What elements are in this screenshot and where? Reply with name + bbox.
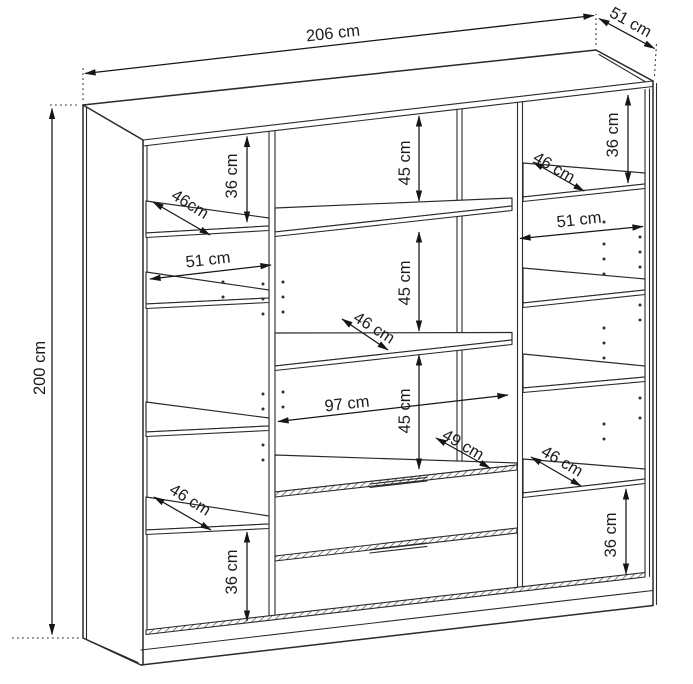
pin-hole — [262, 444, 265, 447]
pin-hole — [282, 391, 285, 394]
top-right-panel-edge — [599, 55, 650, 85]
dim-center-middle-gap: 45 cm — [396, 232, 419, 331]
dim-left-bottom-height: 36 cm — [223, 532, 247, 621]
pin-hole — [639, 251, 642, 254]
dim-label-overall-width: 206 cm — [305, 21, 361, 45]
pin-hole — [282, 296, 285, 299]
pin-hole — [282, 311, 285, 314]
pin-hole — [603, 342, 606, 345]
pin-hole — [639, 397, 642, 400]
drawer-divider-band — [275, 528, 517, 561]
pin-hole — [262, 298, 265, 301]
pin-hole — [639, 236, 642, 239]
drawers — [275, 455, 517, 561]
dim-overall-depth: 51 cm — [599, 4, 657, 76]
base-bottom-edge — [141, 606, 653, 666]
dim-line — [278, 395, 508, 422]
dim-overall-width: 206 cm — [83, 14, 596, 100]
dimension-annotations: 206 cm 51 cm 200 cm 36 cm 46cm 51 — [12, 4, 657, 638]
dim-label-right-top-height: 36 cm — [604, 113, 622, 158]
pin-hole — [262, 313, 265, 316]
extension-line — [655, 43, 657, 76]
pin-hole — [603, 258, 606, 261]
pin-hole — [603, 327, 606, 330]
pin-hole — [639, 266, 642, 269]
bottom-left-inner-line — [87, 640, 139, 663]
dim-center-upper-gap: 45 cm — [396, 116, 419, 201]
dim-label-right-bottom-height: 36 cm — [602, 513, 620, 558]
pin-hole — [603, 423, 606, 426]
pin-hole — [603, 357, 606, 360]
top-right-receding-edge — [596, 50, 653, 81]
pin-hole — [639, 417, 642, 420]
dim-label-left-width: 51 cm — [185, 249, 232, 272]
pin-hole — [282, 281, 285, 284]
shelf-top-surface — [275, 198, 512, 232]
dim-label-center-middle-gap: 45 cm — [396, 261, 414, 306]
pin-hole — [603, 221, 606, 224]
dim-label-left-bottom-height: 36 cm — [223, 550, 241, 595]
pin-hole — [282, 406, 285, 409]
dim-right-width: 51 cm — [520, 209, 643, 239]
pin-hole — [639, 319, 642, 322]
dim-right-bottom-height: 36 cm — [602, 489, 626, 574]
pin-hole — [262, 283, 265, 286]
pin-hole — [603, 243, 606, 246]
dim-label-left-top-height: 36 cm — [223, 154, 241, 199]
pin-hole — [262, 408, 265, 411]
floor-band — [146, 573, 645, 635]
pin-hole — [262, 459, 265, 462]
dim-label-center-upper-gap: 45 cm — [396, 141, 414, 186]
dim-label-overall-height: 200 cm — [31, 341, 49, 395]
dim-left-width: 51 cm — [150, 249, 271, 279]
pin-hole — [262, 393, 265, 396]
top-left-receding-edge — [83, 105, 143, 140]
dim-center-width: 97 cm — [278, 393, 508, 422]
pin-hole — [639, 304, 642, 307]
dim-label-center-lower-gap: 45 cm — [396, 389, 414, 434]
pin-hole — [603, 273, 606, 276]
dim-label-right-width: 51 cm — [556, 209, 603, 232]
pin-hole — [222, 296, 225, 299]
dim-center-lower-gap: 45 cm — [396, 355, 419, 469]
dim-label-center-top-panel-depth: 49 cm — [439, 426, 487, 464]
pin-hole — [603, 438, 606, 441]
wardrobe-dimension-diagram: 206 cm 51 cm 200 cm 36 cm 46cm 51 — [0, 0, 693, 684]
pin-hole — [222, 281, 225, 284]
dim-left-top-height: 36 cm — [223, 137, 247, 223]
base-mid-edge — [141, 591, 653, 651]
dim-overall-height: 200 cm — [12, 105, 80, 638]
